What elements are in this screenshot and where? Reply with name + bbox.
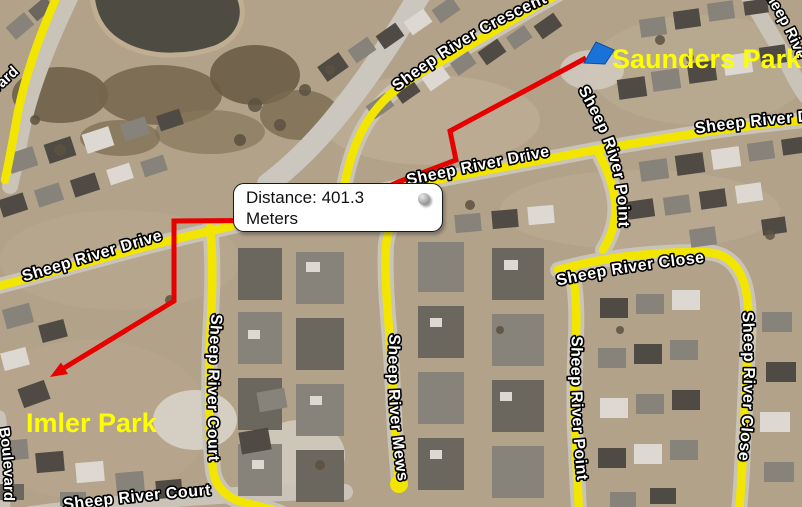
aerial-map: vard Sheep River Crescent Sheep River Dr…: [0, 0, 802, 507]
park-label-saunders: Saunders Park: [612, 44, 802, 74]
tooltip-distance-line1: Distance: 401.3: [246, 187, 432, 208]
globe-icon: [418, 193, 430, 205]
park-label-imler: Imler Park: [26, 408, 158, 438]
tooltip-distance-line2: Meters: [246, 208, 432, 229]
distance-tooltip: Distance: 401.3 Meters: [233, 183, 443, 232]
map-canvas[interactable]: vard Sheep River Crescent Sheep River Dr…: [0, 0, 802, 507]
